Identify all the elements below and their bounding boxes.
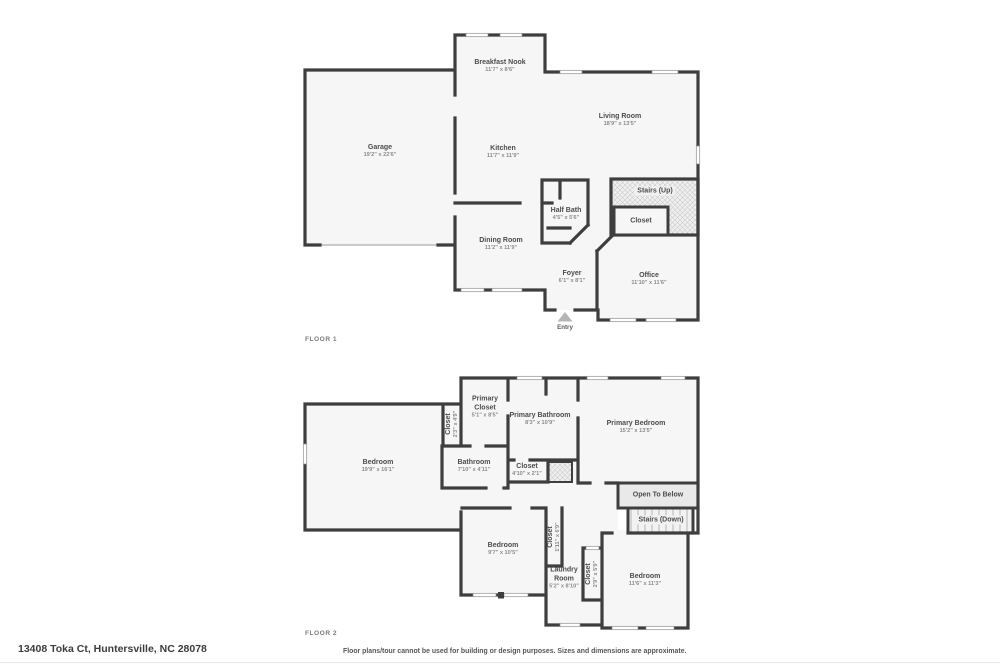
disclaimer-text: Floor plans/tour cannot be used for buil… xyxy=(343,648,686,655)
floor2-bedroom-right-floor xyxy=(602,530,688,628)
floor1-closet-box xyxy=(614,207,668,235)
floorplan-canvas xyxy=(0,0,1000,666)
floor1-label: FLOOR 1 xyxy=(305,336,337,343)
garage-floor xyxy=(305,70,455,245)
floor2-laundry-floor xyxy=(546,560,602,625)
floorplan-page: Garage 19'2" x 22'6" Breakfast Nook 11'7… xyxy=(0,0,1000,666)
floor2-bedroom-left-floor xyxy=(305,404,461,530)
floor1-plan xyxy=(305,33,700,321)
chase-hatch-block xyxy=(548,462,572,482)
floor2-plan xyxy=(303,376,698,629)
property-address: 13408 Toka Ct, Huntersville, NC 28078 xyxy=(18,643,207,655)
footer-divider xyxy=(0,662,1000,663)
stairs-down-area xyxy=(628,508,693,533)
floor2-label: FLOOR 2 xyxy=(305,630,337,637)
open-to-below-box xyxy=(618,483,698,508)
wall-nub xyxy=(498,592,504,599)
entry-arrow-icon xyxy=(558,312,573,322)
floor2-bathroom-floor xyxy=(442,446,508,488)
